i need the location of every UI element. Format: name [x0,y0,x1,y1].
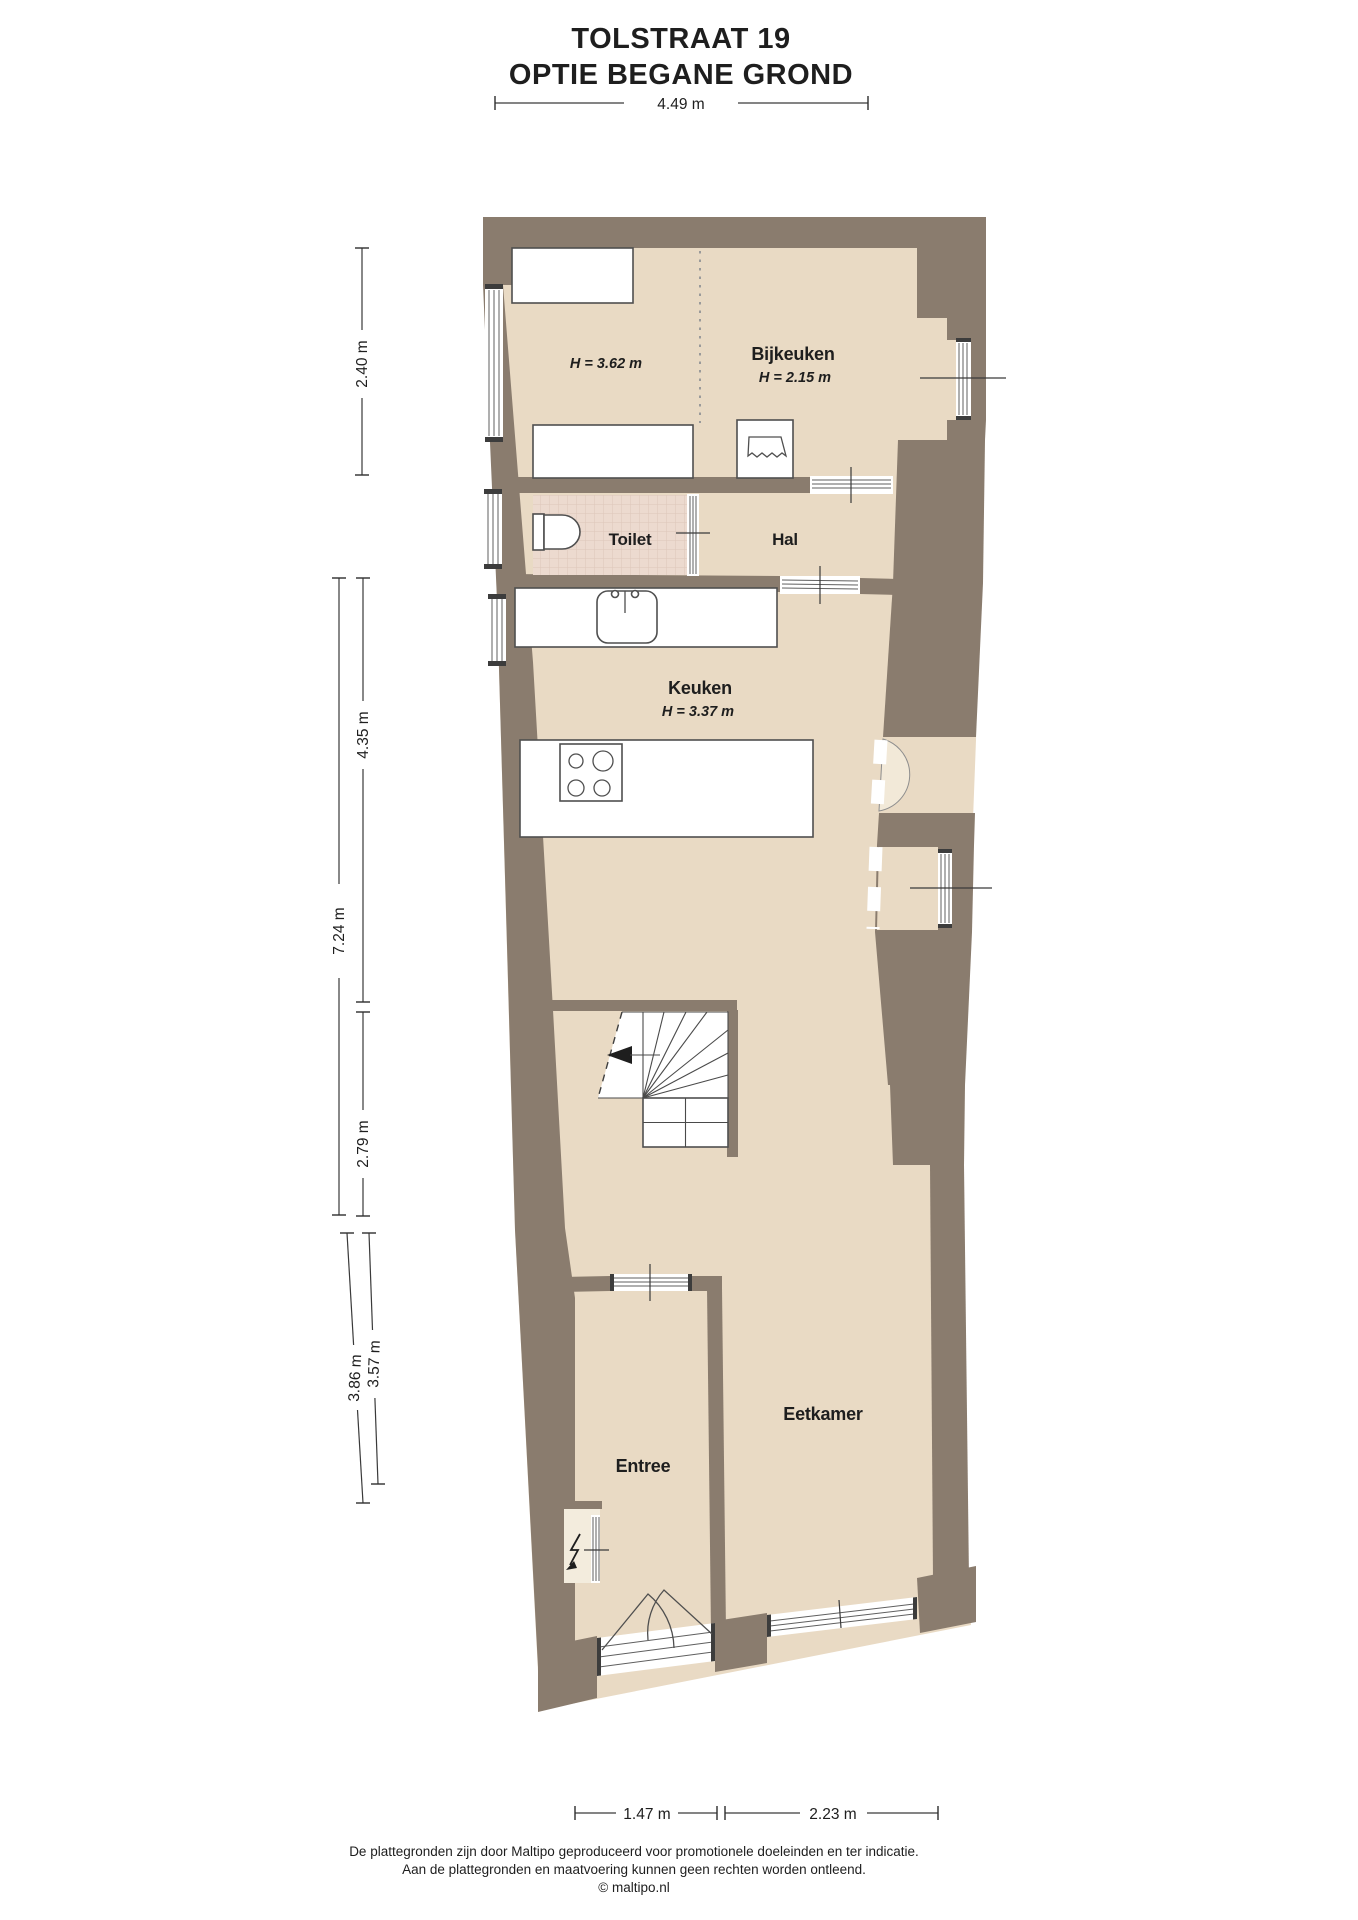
footer-copyright: © maltipo.nl [598,1880,669,1895]
dim-bottom-right-label: 2.23 m [809,1806,856,1823]
bijkeuken-height-label: H = 2.15 m [759,370,831,386]
dim-upper-left: 2.40 m [354,248,371,475]
floorplan-canvas: H = 3.62 m Bijkeuken H = 2.15 m Toilet H… [0,0,1358,1920]
dim-left-outer: 7.24 m [331,578,348,1215]
wall-right-mid [877,813,975,845]
dim-upper-left-label: 2.40 m [354,340,371,387]
footer: De plattegronden zijn door Maltipo gepro… [349,1844,919,1895]
dim-left-inner-lower: 2.79 m [355,1012,372,1216]
wall-bottom-pier [715,1613,767,1672]
counter-lower [533,425,693,478]
toilet-label: Toilet [609,530,652,549]
dim-lower-left-outer-label: 3.86 m [346,1354,365,1402]
wall-right-below-alcove [875,932,972,1085]
wall-right-pier [890,1085,965,1165]
sink [597,591,657,644]
footer-line2: Aan de plattegronden en maatvoering kunn… [402,1862,866,1877]
wall-closet-top [561,1501,602,1509]
title-block: TOLSTRAAT 19 OPTIE BEGANE GROND [509,23,853,91]
wall-right-keuken [883,583,983,737]
dim-lower-left-inner: 3.57 m [362,1233,385,1484]
eetkamer-label: Eetkamer [783,1404,863,1424]
wall-bijkeuken-bottom [507,477,810,493]
page-title: TOLSTRAAT 19 [571,23,790,55]
wall-entree-top-left [562,1276,610,1292]
window-left-3 [488,594,506,666]
dim-left-inner-upper-label: 4.35 m [355,711,372,758]
wall-hal-bottom-right [860,578,898,595]
toilet-fixture [533,514,580,550]
dim-bottom-right: 2.23 m [725,1806,938,1823]
dim-top-label: 4.49 m [657,96,704,113]
dim-left-inner-upper: 4.35 m [355,578,372,1002]
dim-lower-left-inner-label: 3.57 m [365,1340,384,1388]
wall-right-belowwindow [947,420,986,440]
wall-right-window-back [970,340,986,420]
keuken-height-label: H = 3.37 m [662,704,734,720]
bijkeuken-label: Bijkeuken [751,344,834,364]
footer-line1: De plattegronden zijn door Maltipo gepro… [349,1844,919,1859]
page-subtitle: OPTIE BEGANE GROND [509,59,853,91]
wall-stairs-top [550,1000,737,1011]
dim-top: 4.49 m [495,96,868,113]
window-left-1 [485,284,503,442]
hal-label: Hal [772,530,798,549]
window-left-2 [484,489,502,569]
dim-left-inner-lower-label: 2.79 m [355,1120,372,1167]
washing-machine [737,420,793,478]
wall-bottom-left-corner [538,1636,597,1712]
utility-height-label: H = 3.62 m [570,356,642,372]
wall-right-hal [893,440,985,583]
counter-top-left [512,248,633,303]
entree-label: Entree [616,1456,671,1476]
keuken-label: Keuken [668,678,732,698]
wall-right-eetkamer [930,1165,969,1580]
dim-bottom-left: 1.47 m [575,1806,717,1823]
kitchen-island [520,740,813,837]
dim-bottom-left-label: 1.47 m [623,1806,670,1823]
floorplan-page: H = 3.62 m Bijkeuken H = 2.15 m Toilet H… [0,0,1358,1920]
dim-left-outer-label: 7.24 m [331,907,348,954]
